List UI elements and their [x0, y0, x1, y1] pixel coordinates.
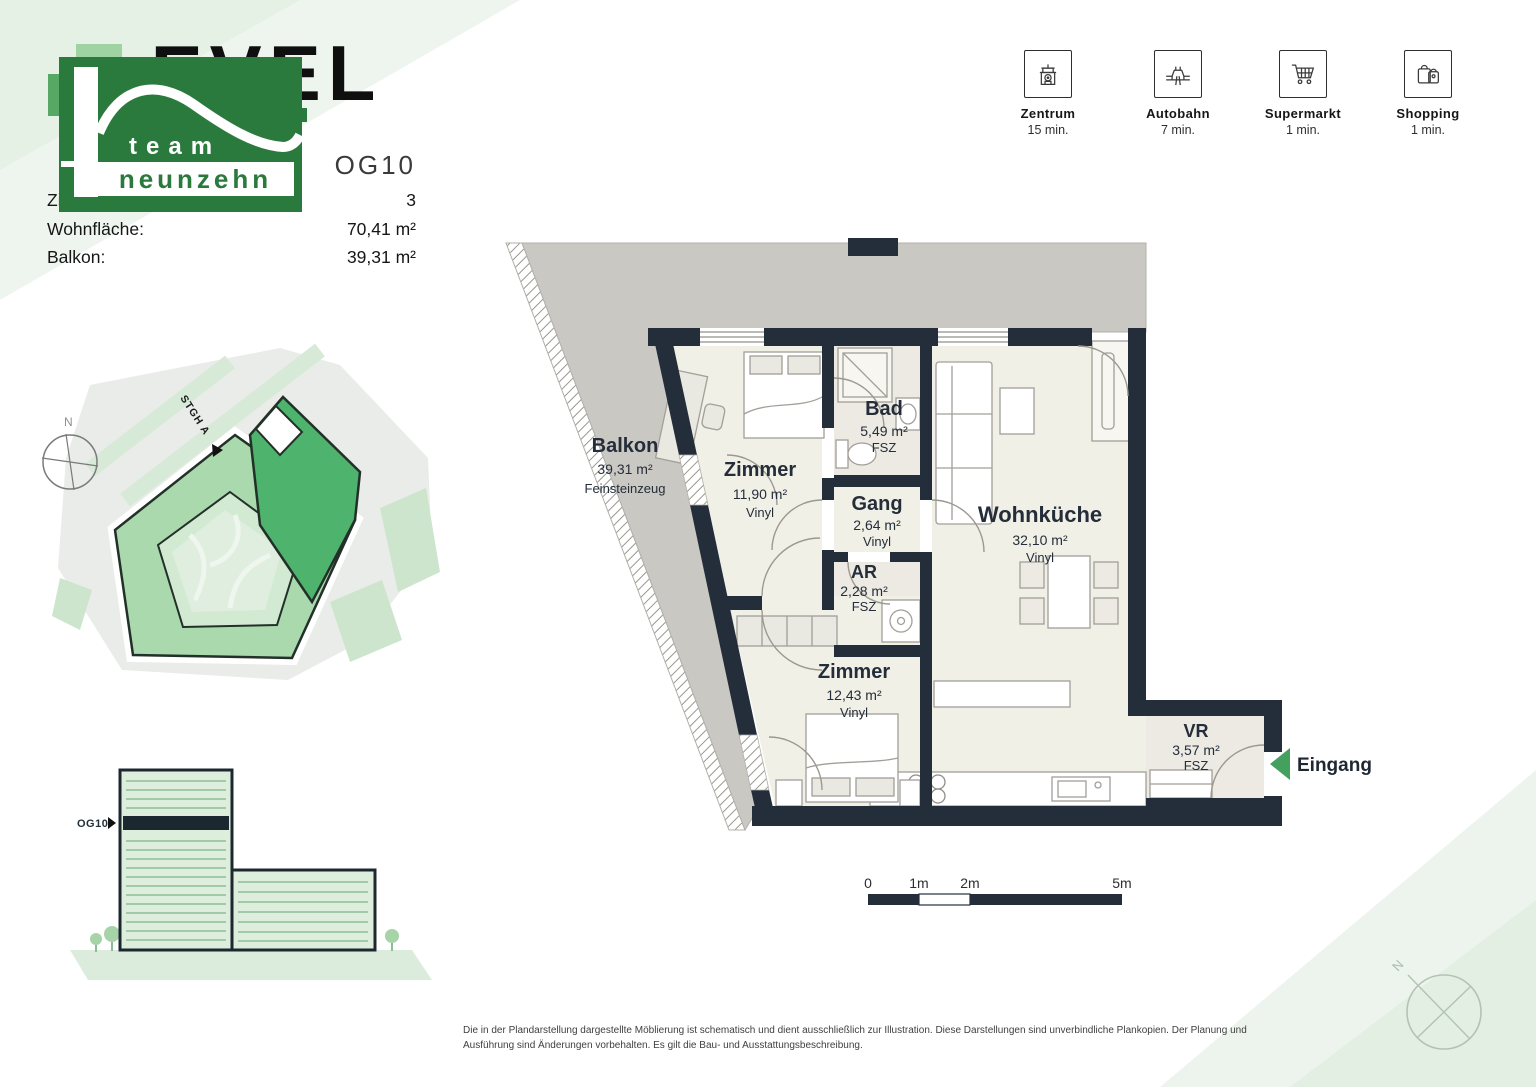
furniture-side-table — [1000, 388, 1034, 434]
room-name: Balkon — [592, 435, 659, 457]
logo-strip: neunzehn — [97, 162, 294, 196]
compass-n-label: N — [64, 415, 73, 429]
logo-line1: team — [129, 133, 221, 161]
furniture-bed-1 — [744, 352, 824, 438]
fact-time: 1 min. — [1248, 123, 1358, 137]
info-label-living-area: Wohnfläche: — [47, 219, 144, 240]
scale-tick: 5m — [1112, 875, 1131, 891]
furniture-washing-machine — [882, 600, 920, 642]
room-name: Zimmer — [724, 459, 796, 481]
building-elevation: OG10 — [70, 770, 432, 980]
furniture-vr-wardrobe — [1150, 770, 1212, 798]
fact-supermarkt: Supermarkt 1 min. — [1248, 50, 1358, 137]
info-value-balcony: 39,31 m² — [200, 247, 416, 268]
room-floor: Vinyl — [1026, 550, 1054, 565]
fact-time: 15 min. — [993, 123, 1103, 137]
floor-plan: Balkon 39,31 m² Feinsteinzeug Zimmer 11,… — [506, 238, 1372, 905]
town-hall-icon — [1024, 50, 1072, 98]
fact-shopping: Shopping 1 min. — [1373, 50, 1483, 137]
room-floor: FSZ — [852, 599, 877, 614]
floor-plan-page: N — [0, 0, 1536, 1087]
scale-bar: 0 1m 2m 5m — [864, 875, 1132, 905]
site-plan: STGH A N — [42, 348, 440, 680]
disclaimer-text: Die in der Plandarstellung dargestellte … — [463, 1023, 1289, 1053]
room-name: Bad — [865, 398, 903, 420]
room-area: 3,57 m² — [1172, 742, 1220, 758]
ground — [70, 950, 432, 980]
entrance-arrow-icon — [1270, 748, 1290, 780]
room-name: VR — [1183, 721, 1208, 741]
tower — [120, 770, 232, 950]
scale-tick: 0 — [864, 875, 872, 891]
room-area: 2,64 m² — [853, 517, 901, 533]
furniture-closet — [737, 616, 837, 646]
entrance-marker: Eingang — [1270, 748, 1372, 780]
room-floor: FSZ — [872, 440, 897, 455]
furniture-sofa — [936, 362, 992, 524]
fact-autobahn: Autobahn 7 min. — [1123, 50, 1233, 137]
room-area: 12,43 m² — [826, 687, 882, 703]
info-value-living-area: 70,41 m² — [200, 219, 416, 240]
fact-label: Supermarkt — [1248, 106, 1358, 121]
room-name: AR — [851, 562, 877, 582]
room-name: Zimmer — [818, 661, 890, 683]
room-name: Gang — [851, 493, 902, 515]
fact-time: 7 min. — [1123, 123, 1233, 137]
logo-crossbar — [61, 161, 75, 167]
fact-label: Shopping — [1373, 106, 1483, 121]
furniture-bed-2 — [806, 714, 898, 802]
scale-tick: 1m — [909, 875, 928, 891]
cart-icon — [1279, 50, 1327, 98]
room-area: 39,31 m² — [597, 461, 653, 477]
scale-tick: 2m — [960, 875, 979, 891]
furniture-shower — [838, 348, 892, 402]
room-area: 5,49 m² — [860, 423, 908, 439]
fact-time: 1 min. — [1373, 123, 1483, 137]
furniture-radiator — [1092, 341, 1132, 441]
fact-label: Zentrum — [993, 106, 1103, 121]
entrance-label: Eingang — [1297, 755, 1372, 776]
room-name: Wohnküche — [978, 502, 1102, 527]
info-label-balcony: Balkon: — [47, 247, 105, 268]
room-area: 2,28 m² — [840, 583, 888, 599]
room-area: 11,90 m² — [733, 486, 788, 502]
highway-icon — [1154, 50, 1202, 98]
elevation-floor-label: OG10 — [77, 818, 108, 830]
furniture-kitchen-island — [934, 681, 1070, 707]
room-floor: Feinsteinzeug — [585, 481, 666, 496]
room-area: 32,10 m² — [1012, 532, 1068, 548]
room-floor: Vinyl — [863, 534, 891, 549]
room-floor: FSZ — [1184, 758, 1209, 773]
shopping-bags-icon — [1404, 50, 1452, 98]
fact-zentrum: Zentrum 15 min. — [993, 50, 1103, 137]
highlighted-floor-band — [123, 816, 229, 830]
furniture-nightstand — [900, 780, 920, 806]
room-floor: Vinyl — [840, 705, 868, 720]
furniture-nightstand — [776, 780, 802, 806]
floor-arrow-icon — [108, 817, 116, 829]
logo-line2: neunzehn — [119, 166, 272, 192]
fact-label: Autobahn — [1123, 106, 1233, 121]
company-logo: team neunzehn — [59, 57, 302, 212]
logo-bar — [74, 67, 98, 197]
room-floor: Vinyl — [746, 505, 774, 520]
